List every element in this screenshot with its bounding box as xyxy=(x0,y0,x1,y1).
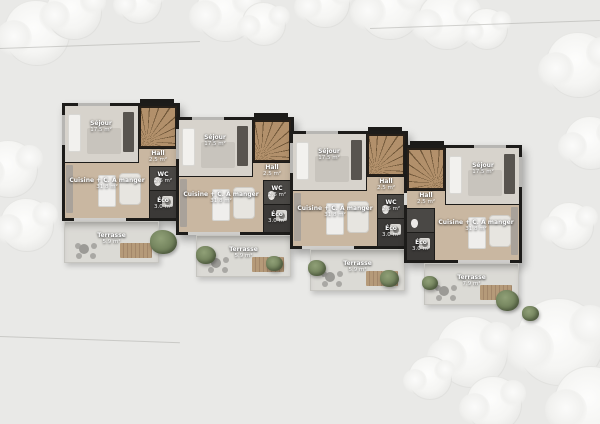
toilet xyxy=(268,191,275,200)
window xyxy=(176,129,179,159)
room-sejour xyxy=(179,120,252,176)
tree xyxy=(546,202,594,250)
room-cuisine xyxy=(293,191,377,246)
kitchen-counter xyxy=(294,193,301,241)
window xyxy=(78,103,110,106)
terrace: Terrasse5.9 m² xyxy=(64,221,159,263)
spiral-staircase xyxy=(409,150,443,188)
wood-mat xyxy=(120,243,152,258)
window xyxy=(474,145,506,148)
tv-cabinet xyxy=(237,126,248,166)
sofa xyxy=(182,128,195,166)
kitchen-island xyxy=(326,203,344,235)
shrub xyxy=(266,256,283,271)
room-eco xyxy=(407,233,434,260)
sofa xyxy=(449,156,462,194)
spiral-staircase xyxy=(369,136,403,174)
unit-walls: Séjour17.5 m² Hall2.5 m² WC2.6 m² Éco3.0… xyxy=(62,103,180,221)
patio-table xyxy=(439,286,449,296)
spiral-staircase xyxy=(141,108,175,146)
toilet xyxy=(411,219,418,228)
shrub xyxy=(150,230,177,254)
tv-cabinet xyxy=(351,140,362,180)
kitchen-island xyxy=(98,175,116,207)
shrub xyxy=(522,306,539,321)
tree xyxy=(300,0,350,28)
window xyxy=(519,157,522,187)
patio-table xyxy=(325,272,335,282)
shrub xyxy=(308,260,326,276)
room-wc xyxy=(378,195,405,218)
window xyxy=(192,117,224,120)
room-stairs xyxy=(367,134,405,176)
window xyxy=(290,143,293,173)
window xyxy=(62,115,65,145)
room-cuisine xyxy=(435,205,519,260)
room-sejour xyxy=(293,134,366,190)
sofa xyxy=(68,114,81,152)
room-sejour xyxy=(65,106,138,162)
tree xyxy=(0,140,38,198)
tv-cabinet xyxy=(504,154,515,194)
room-eco xyxy=(378,219,405,246)
tree xyxy=(0,198,54,252)
rug xyxy=(201,142,235,168)
entrance-door xyxy=(404,193,407,205)
tv-cabinet xyxy=(123,112,134,152)
room-eco xyxy=(150,191,177,218)
patio-table xyxy=(79,244,89,254)
room-wc xyxy=(150,167,177,190)
room-sejour xyxy=(446,148,519,204)
dining-table xyxy=(119,173,141,205)
washer xyxy=(390,224,401,235)
dining-table xyxy=(489,215,511,247)
dining-table xyxy=(347,201,369,233)
tree xyxy=(546,32,600,98)
room-stairs xyxy=(139,106,177,148)
washer xyxy=(419,238,430,249)
window xyxy=(306,131,338,134)
shrub xyxy=(196,246,216,264)
room-wc xyxy=(407,209,434,232)
unit-2: Séjour17.5 m² Hall2.5 m² WC2.6 m² Éco3.0… xyxy=(176,117,294,279)
tree xyxy=(466,376,522,424)
kitchen-counter xyxy=(180,179,187,227)
room-cuisine xyxy=(65,163,149,218)
kitchen-counter xyxy=(511,207,518,255)
room-eco xyxy=(264,205,291,232)
site-plan: Séjour17.5 m² Hall2.5 m² WC2.6 m² Éco3.0… xyxy=(0,0,600,424)
boundary-line xyxy=(0,336,180,343)
room-stairs xyxy=(407,148,445,190)
room-cuisine xyxy=(179,177,263,232)
unit-walls: Séjour17.5 m² Hall2.5 m² WC2.6 m² Éco3.0… xyxy=(290,131,408,249)
washer xyxy=(276,210,287,221)
washer xyxy=(162,196,173,207)
room-stairs xyxy=(253,120,291,162)
toilet xyxy=(382,205,389,214)
sofa xyxy=(296,142,309,180)
shrub xyxy=(496,290,519,311)
kitchen-island xyxy=(468,217,486,249)
unit-walls: Séjour17.5 m² Hall2.5 m² WC2.6 m² Éco3.0… xyxy=(176,117,294,235)
dining-table xyxy=(233,187,255,219)
kitchen-counter xyxy=(66,165,73,213)
spiral-staircase xyxy=(255,122,289,160)
tree xyxy=(466,8,508,50)
tree xyxy=(408,356,452,400)
kitchen-island xyxy=(212,189,230,221)
rug xyxy=(87,128,121,154)
tree xyxy=(118,0,162,24)
room-wc xyxy=(264,181,291,204)
toilet xyxy=(154,177,161,186)
unit-walls: Séjour17.5 m² Hall2.5 m² Éco3.0 m² Cuisi… xyxy=(404,145,522,263)
rug xyxy=(468,170,502,196)
shrub xyxy=(380,270,399,287)
rug xyxy=(315,156,349,182)
tree xyxy=(564,116,600,170)
tree xyxy=(242,2,286,46)
